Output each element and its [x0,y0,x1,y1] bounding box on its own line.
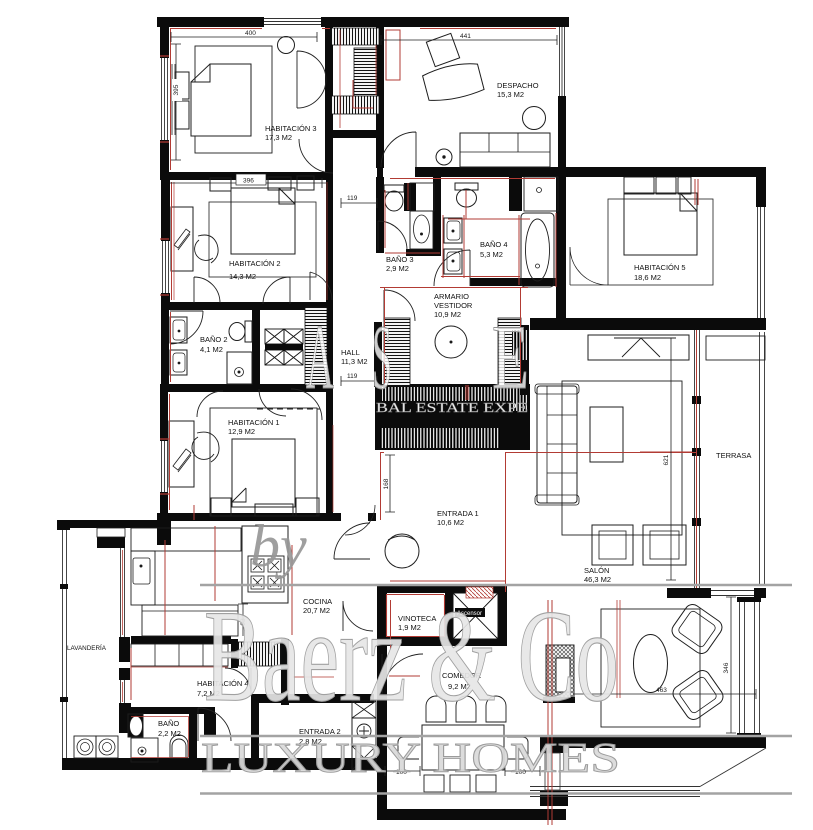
svg-text:E: E [492,306,529,408]
svg-text:LUXURY HOMES: LUXURY HOMES [201,736,620,782]
svg-text:ENTRADA 1: ENTRADA 1 [437,509,479,518]
svg-text:SALÓN: SALÓN [584,566,609,575]
svg-text:119: 119 [347,195,358,202]
svg-text:A: A [306,306,334,408]
svg-text:HALL: HALL [341,348,360,357]
svg-text:4,1 M2: 4,1 M2 [200,345,223,354]
svg-text:119: 119 [347,373,358,380]
svg-text:by: by [250,513,307,579]
svg-text:TERRASA: TERRASA [716,451,751,460]
svg-text:BAÑO 4: BAÑO 4 [480,240,508,249]
svg-text:BAL ESTATE EXPE: BAL ESTATE EXPE [376,400,528,415]
svg-text:HABITACIÓN 1: HABITACIÓN 1 [228,418,280,427]
svg-text:BAÑO 2: BAÑO 2 [200,335,228,344]
svg-text:HABITACIÓN 3: HABITACIÓN 3 [265,124,317,133]
svg-text:463: 463 [656,687,667,694]
svg-text:Baerz & Co: Baerz & Co [204,582,619,729]
svg-text:S: S [372,306,392,408]
svg-text:621: 621 [663,454,670,465]
svg-text:VESTIDOR: VESTIDOR [434,301,473,310]
svg-text:10,6 M2: 10,6 M2 [437,518,464,527]
svg-text:LAVANDERÍA: LAVANDERÍA [67,643,107,652]
svg-text:15,3 M2: 15,3 M2 [497,90,524,99]
svg-text:12,9 M2: 12,9 M2 [228,427,255,436]
svg-text:2,9 M2: 2,9 M2 [386,264,409,273]
svg-text:346: 346 [723,662,730,673]
svg-text:DESPACHO: DESPACHO [497,81,539,90]
svg-text:BAÑO 3: BAÑO 3 [386,255,414,264]
svg-text:HABITACIÓN 2: HABITACIÓN 2 [229,259,281,268]
svg-text:17,3 M2: 17,3 M2 [265,133,292,142]
svg-text:400: 400 [245,30,256,37]
svg-text:441: 441 [460,33,471,40]
svg-text:HABITACIÓN 5: HABITACIÓN 5 [634,263,686,272]
svg-text:2,2 M2: 2,2 M2 [158,729,181,738]
svg-text:168: 168 [383,478,390,489]
svg-text:BAÑO: BAÑO [158,719,179,728]
svg-text:396: 396 [243,178,254,185]
svg-text:395: 395 [173,84,180,95]
svg-text:11,3 M2: 11,3 M2 [341,357,368,366]
svg-text:14,3 M2: 14,3 M2 [229,272,256,281]
svg-text:10,9 M2: 10,9 M2 [434,310,461,319]
svg-text:ARMARIO: ARMARIO [434,292,469,301]
svg-text:5,3 M2: 5,3 M2 [480,250,503,259]
svg-text:18,6 M2: 18,6 M2 [634,273,661,282]
